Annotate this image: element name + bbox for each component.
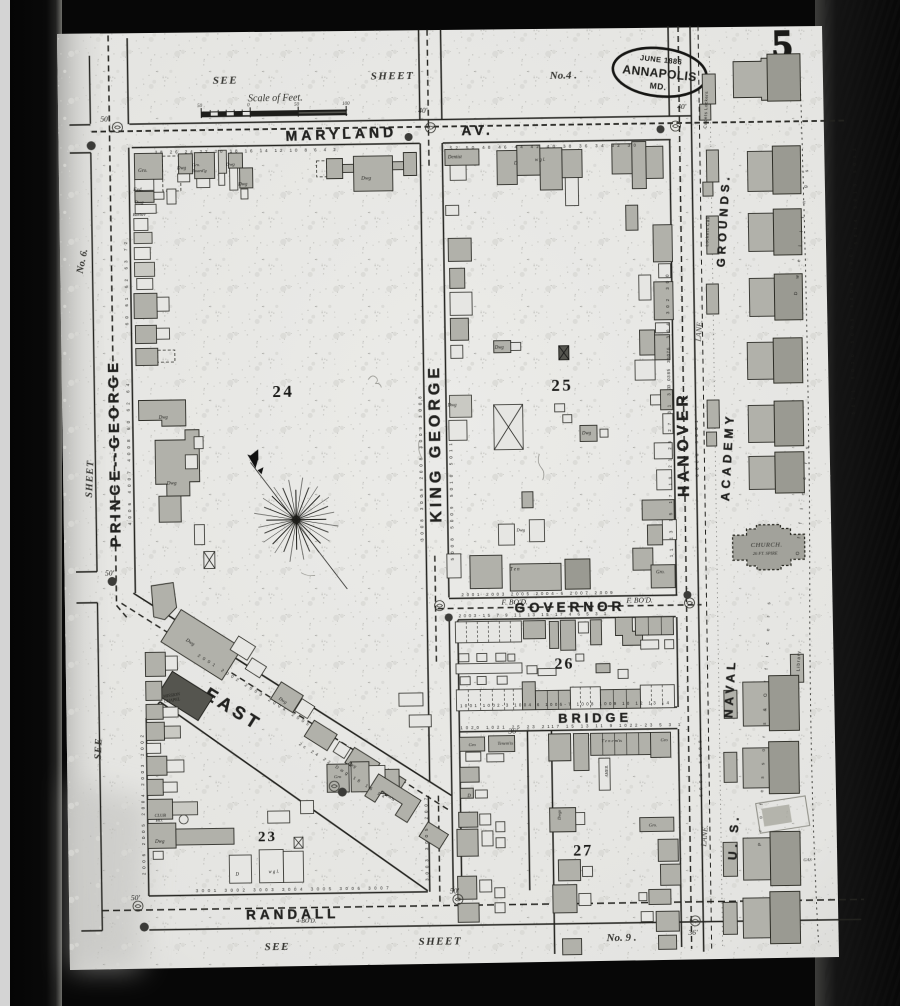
svg-text:50: 50 bbox=[294, 103, 300, 108]
svg-text:Dwg: Dwg bbox=[494, 346, 505, 351]
svg-text:KING GEORGE: KING GEORGE bbox=[426, 364, 445, 523]
svg-text:Gro.: Gro. bbox=[656, 570, 665, 575]
svg-text:36': 36' bbox=[687, 928, 698, 937]
svg-text:Gro.: Gro. bbox=[649, 822, 657, 827]
svg-text:Tenem'ts: Tenem'ts bbox=[498, 741, 514, 746]
svg-text:Gro: Gro bbox=[661, 737, 669, 742]
svg-text:24: 24 bbox=[272, 382, 294, 401]
svg-text:Gro.: Gro. bbox=[138, 168, 148, 174]
svg-text:40': 40' bbox=[418, 106, 428, 115]
svg-text:HANOVER: HANOVER bbox=[674, 391, 693, 497]
svg-text:CHURCH.: CHURCH. bbox=[751, 542, 783, 549]
svg-text:Dwg: Dwg bbox=[237, 182, 248, 187]
svg-text:SHEET: SHEET bbox=[84, 460, 96, 498]
svg-text:Library: Library bbox=[796, 650, 802, 671]
svg-text:50': 50' bbox=[450, 886, 460, 895]
svg-text:HO.: HO. bbox=[155, 818, 164, 823]
svg-text:F. BO'D.: F. BO'D. bbox=[500, 597, 528, 606]
svg-text:Gro.: Gro. bbox=[192, 162, 200, 167]
svg-text:36': 36' bbox=[507, 726, 518, 735]
svg-text:D: D bbox=[513, 161, 518, 166]
svg-text:U. S.: U. S. bbox=[725, 813, 742, 860]
svg-text:F. BO'D.: F. BO'D. bbox=[625, 595, 653, 604]
svg-text:w g l.: w g l. bbox=[268, 870, 279, 875]
svg-text:50': 50' bbox=[100, 114, 110, 123]
svg-text:Dwg: Dwg bbox=[515, 527, 525, 532]
svg-text:w g l.: w g l. bbox=[535, 158, 546, 163]
svg-text:Dwg: Dwg bbox=[581, 431, 592, 436]
svg-text:Dentist: Dentist bbox=[447, 155, 463, 160]
svg-text:6009 6008: 6009 6008 bbox=[698, 736, 704, 797]
svg-text:MD.: MD. bbox=[649, 80, 667, 92]
svg-text:Barber: Barber bbox=[133, 212, 146, 217]
svg-text:100: 100 bbox=[342, 102, 350, 107]
svg-text:LANE.: LANE. bbox=[694, 320, 705, 343]
svg-text:No. 9 .: No. 9 . bbox=[605, 932, 636, 944]
svg-text:27: 27 bbox=[573, 842, 593, 859]
svg-text:Dwg: Dwg bbox=[447, 403, 458, 408]
svg-text:LANE.: LANE. bbox=[699, 825, 710, 848]
svg-text:25: 25 bbox=[551, 376, 573, 395]
svg-text:4-BO'D.: 4-BO'D. bbox=[296, 917, 316, 924]
svg-text:Dwg: Dwg bbox=[176, 166, 187, 171]
svg-text:T e n e m'ts: T e n e m'ts bbox=[602, 738, 623, 743]
svg-text:Gro: Gro bbox=[334, 774, 342, 779]
svg-text:50': 50' bbox=[131, 893, 141, 902]
svg-text:Gro: Gro bbox=[469, 742, 477, 747]
svg-text:D: D bbox=[466, 794, 471, 799]
svg-text:SEE: SEE bbox=[265, 941, 290, 953]
svg-text:No.4 .: No.4 . bbox=[549, 70, 577, 82]
svg-text:6000 6001: 6000 6001 bbox=[694, 416, 700, 477]
svg-text:Board'g: Board'g bbox=[192, 168, 207, 173]
svg-text:SEE: SEE bbox=[93, 737, 105, 759]
svg-text:SHEET: SHEET bbox=[418, 935, 462, 948]
svg-text:Dwg: Dwg bbox=[158, 416, 169, 421]
svg-text:Dwg: Dwg bbox=[134, 201, 145, 206]
svg-text:26 FT. SPIRE: 26 FT. SPIRE bbox=[753, 551, 778, 556]
svg-text:26: 26 bbox=[554, 656, 574, 673]
svg-text:Dwg: Dwg bbox=[154, 840, 165, 845]
svg-text:SHEET: SHEET bbox=[371, 70, 415, 83]
svg-text:PRINCE--GEORGE: PRINCE--GEORGE bbox=[105, 359, 125, 548]
svg-text:RANDALL: RANDALL bbox=[246, 906, 339, 922]
svg-text:Dwg: Dwg bbox=[360, 176, 371, 182]
svg-text:Fed.: Fed. bbox=[132, 187, 142, 193]
svg-text:50: 50 bbox=[197, 104, 203, 109]
svg-text:D: D bbox=[235, 873, 240, 878]
svg-text:50': 50' bbox=[105, 568, 115, 577]
svg-text:T e n: T e n bbox=[510, 567, 520, 572]
svg-text:Dwgs: Dwgs bbox=[557, 810, 562, 821]
svg-text:23: 23 bbox=[258, 829, 277, 845]
svg-text:GAS: GAS bbox=[803, 857, 812, 862]
svg-text:Dwg: Dwg bbox=[225, 162, 235, 167]
svg-text:40': 40' bbox=[677, 102, 687, 111]
svg-text:Dwg: Dwg bbox=[166, 480, 177, 486]
svg-text:AMER.: AMER. bbox=[604, 765, 609, 778]
svg-text:SEE: SEE bbox=[213, 75, 238, 87]
svg-text:AV.: AV. bbox=[461, 123, 493, 138]
